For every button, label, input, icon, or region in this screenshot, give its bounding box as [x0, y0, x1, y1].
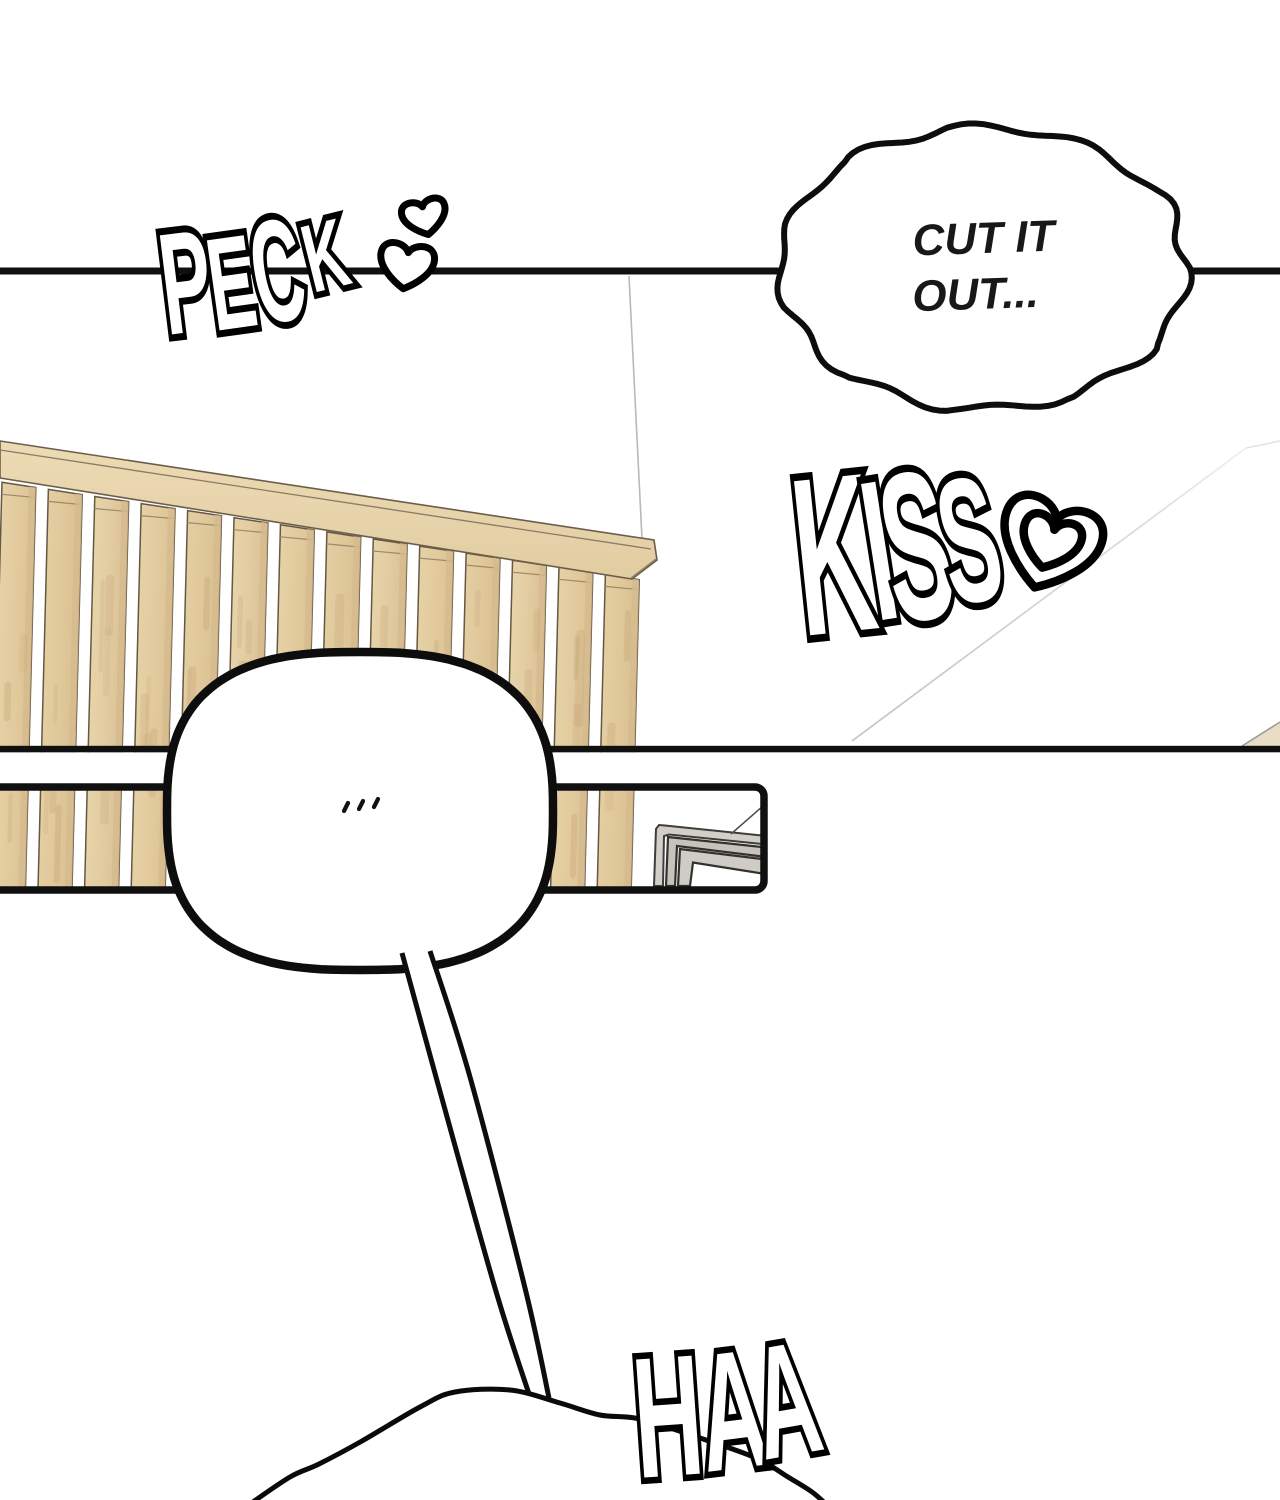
- svg-text:OUT...: OUT...: [912, 268, 1040, 321]
- svg-text:CUT IT: CUT IT: [912, 211, 1058, 265]
